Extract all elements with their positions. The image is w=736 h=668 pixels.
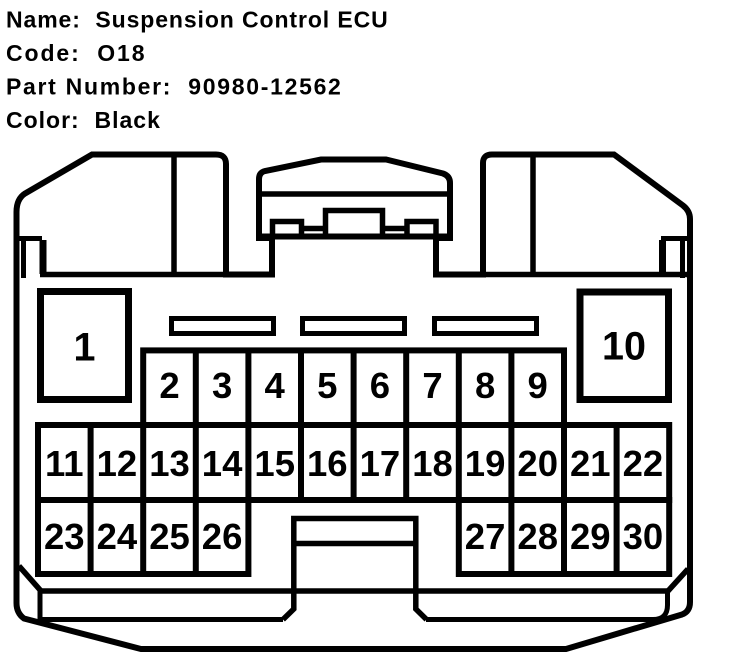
svg-text:9: 9 — [528, 365, 548, 406]
svg-text:18: 18 — [412, 443, 453, 484]
svg-text:Color: Black: Color: Black — [6, 107, 161, 133]
svg-text:14: 14 — [202, 443, 243, 484]
svg-text:29: 29 — [570, 516, 611, 557]
svg-text:28: 28 — [517, 516, 558, 557]
svg-text:10: 10 — [602, 325, 646, 369]
svg-text:16: 16 — [307, 443, 348, 484]
svg-text:17: 17 — [360, 443, 401, 484]
svg-text:24: 24 — [97, 516, 138, 557]
svg-text:25: 25 — [149, 516, 190, 557]
svg-text:3: 3 — [212, 365, 232, 406]
svg-text:20: 20 — [517, 443, 558, 484]
svg-text:2: 2 — [159, 365, 179, 406]
svg-text:7: 7 — [422, 365, 442, 406]
svg-text:27: 27 — [465, 516, 506, 557]
svg-text:8: 8 — [475, 365, 495, 406]
svg-text:12: 12 — [97, 443, 138, 484]
svg-text:26: 26 — [202, 516, 243, 557]
svg-text:Name: Suspension Control ECU: Name: Suspension Control ECU — [6, 7, 389, 33]
svg-text:Code: O18: Code: O18 — [6, 40, 146, 66]
svg-text:19: 19 — [465, 443, 506, 484]
svg-text:1: 1 — [74, 326, 96, 370]
svg-text:23: 23 — [44, 516, 85, 557]
svg-text:6: 6 — [370, 365, 390, 406]
svg-text:21: 21 — [570, 443, 611, 484]
svg-text:13: 13 — [149, 443, 190, 484]
svg-text:22: 22 — [623, 443, 664, 484]
svg-text:30: 30 — [623, 516, 664, 557]
svg-text:15: 15 — [254, 443, 295, 484]
svg-text:4: 4 — [265, 365, 286, 406]
svg-text:5: 5 — [317, 365, 337, 406]
svg-text:11: 11 — [45, 443, 84, 484]
svg-text:Part Number: 90980-12562: Part Number: 90980-12562 — [6, 74, 343, 100]
